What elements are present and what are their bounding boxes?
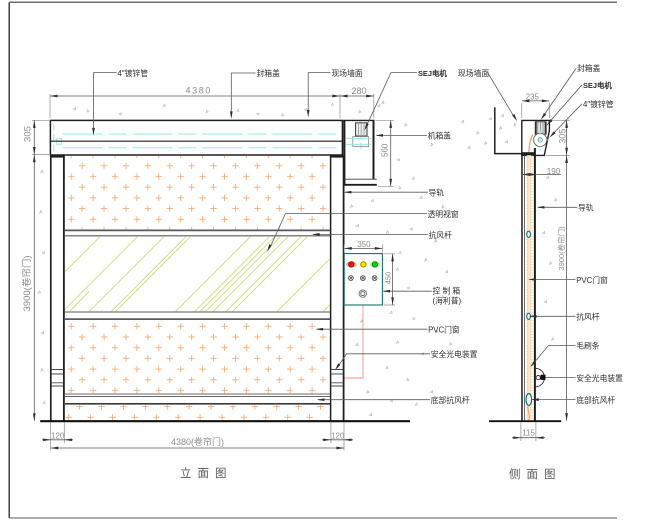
svg-text:PVC门窗: PVC门窗: [428, 325, 460, 335]
svg-text:侧面图: 侧面图: [509, 468, 562, 481]
svg-text:120: 120: [51, 431, 65, 440]
svg-text:3900(卷帘门): 3900(卷帘门): [21, 256, 33, 312]
svg-text:现场墙面: 现场墙面: [458, 68, 489, 78]
svg-text:透明视窗: 透明视窗: [428, 209, 459, 219]
svg-text:235: 235: [526, 92, 540, 101]
svg-text:350: 350: [357, 240, 371, 249]
svg-text:280: 280: [352, 86, 367, 96]
svg-text:导轨: 导轨: [578, 203, 594, 213]
svg-text:底部抗风杆: 底部抗风杆: [431, 395, 470, 405]
svg-text:4380(卷帘门): 4380(卷帘门): [171, 436, 224, 447]
svg-text:安全光电装置: 安全光电装置: [576, 373, 623, 383]
svg-text:机箱盖: 机箱盖: [428, 131, 452, 141]
svg-text:PVC门窗: PVC门窗: [576, 275, 608, 285]
svg-text:3900(卷帘门): 3900(卷帘门): [556, 226, 566, 271]
svg-text:毛刷条: 毛刷条: [576, 341, 600, 351]
svg-text:4″镀锌管: 4″镀锌管: [583, 99, 614, 109]
svg-text:190: 190: [547, 167, 561, 176]
svg-text:4380: 4380: [186, 86, 212, 96]
svg-text:控 制 箱: 控 制 箱: [433, 286, 461, 296]
svg-text:(海利普): (海利普): [433, 295, 462, 305]
svg-text:305: 305: [557, 129, 567, 144]
svg-text:现场墙面: 现场墙面: [332, 68, 363, 78]
svg-text:封箱盖: 封箱盖: [257, 68, 281, 78]
svg-text:120: 120: [331, 431, 345, 440]
svg-text:导轨: 导轨: [429, 187, 445, 197]
svg-text:560: 560: [381, 143, 390, 157]
svg-text:底部抗风杆: 底部抗风杆: [576, 395, 615, 405]
svg-text:SEJ电机: SEJ电机: [418, 69, 447, 78]
svg-text:SEJ电机: SEJ电机: [583, 81, 612, 90]
svg-text:4″镀锌管: 4″镀锌管: [118, 68, 149, 78]
svg-text:安全光电装置: 安全光电装置: [431, 349, 478, 359]
svg-text:450: 450: [383, 272, 392, 285]
svg-text:封箱盖: 封箱盖: [577, 63, 601, 73]
svg-text:抗风杆: 抗风杆: [429, 230, 453, 240]
svg-text:115: 115: [522, 429, 535, 438]
svg-text:抗风杆: 抗风杆: [576, 312, 600, 322]
svg-text:305: 305: [23, 126, 34, 142]
svg-text:立面图: 立面图: [180, 466, 233, 480]
